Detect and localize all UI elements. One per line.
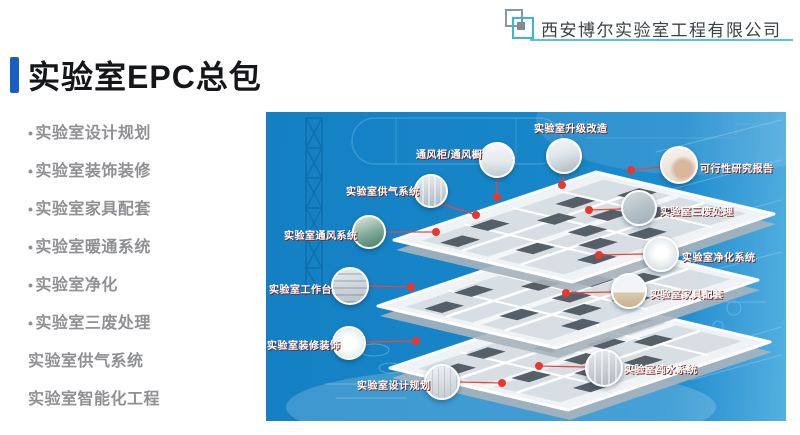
callout-feasibility-label: 可行性研究报告 <box>700 160 774 175</box>
page-title: 实验室EPC总包 <box>28 52 262 98</box>
slide: 西安博尔实验室工程有限公司 实验室EPC总包 •实验室设计规划 •实验室装饰装修… <box>0 0 800 435</box>
callout-waste-treatment-photo <box>621 190 657 226</box>
list-item: •实验室设计规划 <box>28 119 160 135</box>
bullet: • <box>28 277 33 293</box>
company-logo-icon <box>498 7 536 41</box>
bullet: • <box>28 163 33 179</box>
title-accent-bar <box>10 57 19 93</box>
diagram-illustration <box>266 112 786 421</box>
callout-furniture-photo <box>611 273 647 309</box>
bullet: • <box>28 239 33 255</box>
callout-ventilation-label: 实验室通风系统 <box>284 227 358 242</box>
callout-purification-label: 实验室净化系统 <box>682 249 756 264</box>
callout-fume-hood-label: 通风柜/通风橱 <box>416 146 482 161</box>
bullet: • <box>28 315 33 331</box>
service-label: 实验室装饰装修 <box>35 163 151 180</box>
callout-pure-water-label: 实验室纯水系统 <box>624 361 698 376</box>
callout-pure-water-photo <box>585 349 623 387</box>
list-item: 实验室供气系统 <box>28 347 160 363</box>
callout-workbench-label: 实验室工作台 <box>269 281 332 296</box>
callout-purification-photo <box>643 236 679 272</box>
list-item: •实验室装饰装修 <box>28 157 160 173</box>
list-item: •实验室家具配套 <box>28 195 160 211</box>
service-label: 实验室家具配套 <box>35 201 151 218</box>
callout-workbench-photo <box>331 267 369 305</box>
service-label: 实验室净化 <box>35 277 118 294</box>
service-label: 实验室三废处理 <box>35 315 151 332</box>
header-underline <box>530 39 793 41</box>
callout-upgrade-label: 实验室升级改造 <box>534 120 608 135</box>
list-item: •实验室净化 <box>28 271 160 287</box>
callout-gas-supply-label: 实验室供气系统 <box>346 183 420 198</box>
list-item: 实验室智能化工程 <box>28 385 160 401</box>
callout-fume-hood-photo <box>479 142 515 178</box>
diagram-panel: 实验室升级改造 通风柜/通风橱 实验室供气系统 实验室通风系统 可行性研究报告 … <box>266 112 786 421</box>
callout-design-planning-label: 实验室设计规划 <box>357 377 431 392</box>
list-item: •实验室三废处理 <box>28 309 160 325</box>
list-item: •实验室暖通系统 <box>28 233 160 249</box>
service-label: 实验室暖通系统 <box>35 239 151 256</box>
callout-waste-treatment-label: 实验室三废处理 <box>660 203 734 218</box>
service-list: •实验室设计规划 •实验室装饰装修 •实验室家具配套 •实验室暖通系统 •实验室… <box>28 119 160 423</box>
service-label: 实验室供气系统 <box>28 353 144 370</box>
bullet: • <box>28 201 33 217</box>
callout-feasibility-photo <box>660 146 698 184</box>
crane-drawing <box>306 118 322 296</box>
service-label: 实验室设计规划 <box>35 125 151 142</box>
logo-square-small <box>517 22 525 30</box>
callout-furniture-label: 实验室家具配套 <box>650 286 724 301</box>
company-name: 西安博尔实验室工程有限公司 <box>541 16 782 41</box>
callout-upgrade-photo <box>546 138 582 174</box>
bullet: • <box>28 125 33 141</box>
service-label: 实验室智能化工程 <box>28 391 160 408</box>
callout-decoration-label: 实验室装修装饰 <box>267 337 341 352</box>
